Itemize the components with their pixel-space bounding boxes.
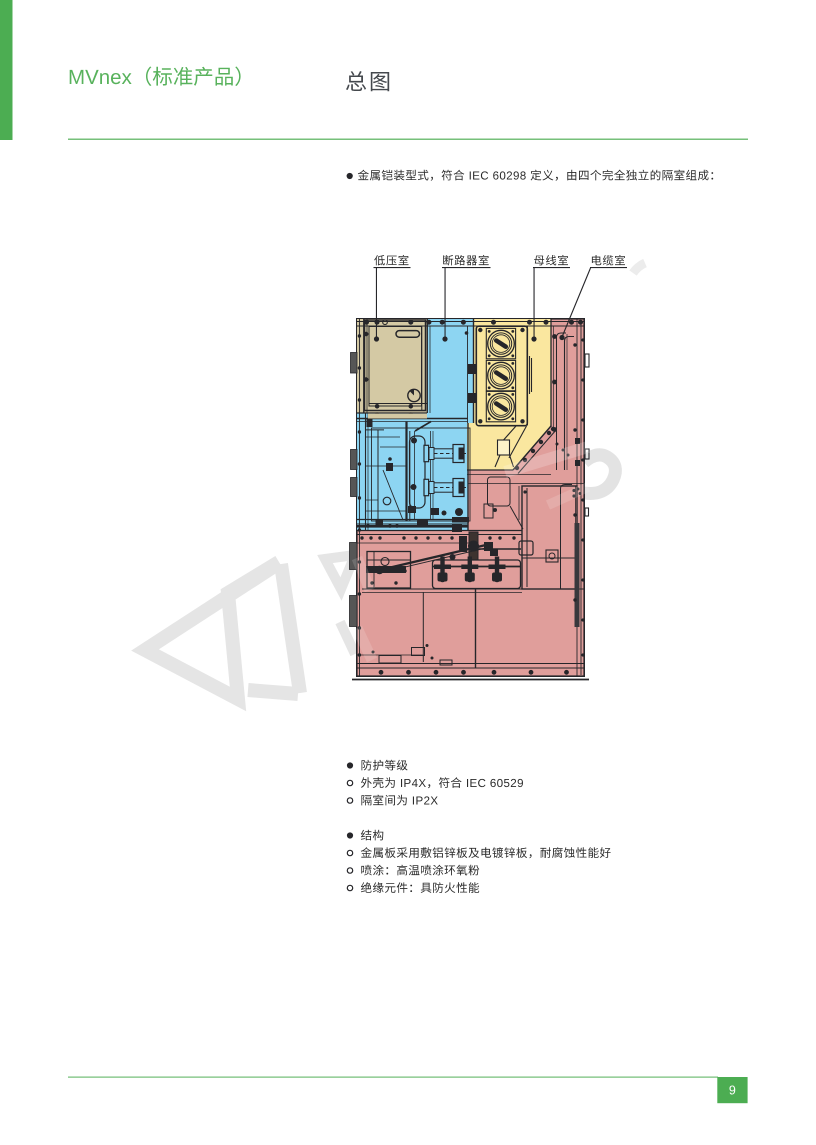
svg-text:9: 9 (729, 1084, 736, 1098)
